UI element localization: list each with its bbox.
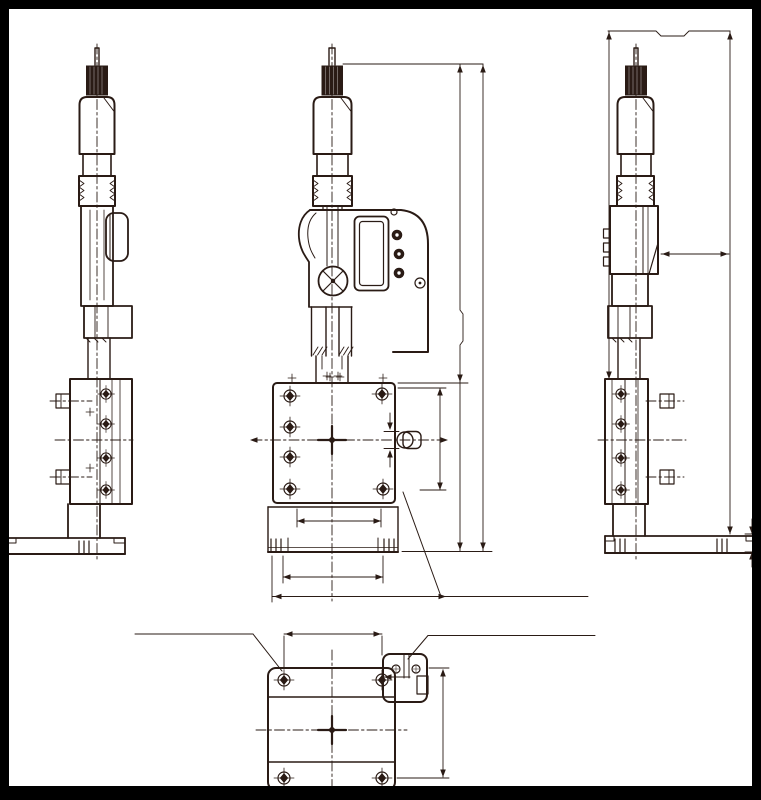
button-3[interactable] — [394, 268, 405, 279]
view-left-side — [5, 44, 133, 560]
stage-plate-front — [250, 373, 448, 503]
dimensions-right — [606, 31, 759, 567]
display-housing-edge — [604, 206, 659, 274]
sleeve-body — [314, 97, 352, 154]
display-housing — [310, 209, 428, 352]
overall-height-extension — [608, 31, 730, 36]
ratchet-cap — [86, 66, 108, 96]
ratchet-cap — [322, 66, 344, 96]
leader-line — [403, 492, 441, 597]
hole-pitch-dimension-with-breaks — [135, 631, 595, 671]
button-2[interactable] — [394, 249, 405, 260]
width-dimension-b — [283, 556, 383, 583]
button-1[interactable] — [392, 230, 403, 241]
travel-dimension — [661, 251, 729, 257]
border-right — [752, 0, 761, 800]
base-foot-side — [605, 504, 755, 553]
clamp-screws-right — [646, 394, 684, 484]
drawing-canvas — [0, 0, 761, 800]
base-foot-side — [5, 504, 125, 554]
clamp-block — [84, 306, 132, 342]
border-top — [0, 0, 761, 9]
clamp-plan — [383, 654, 428, 702]
frame — [299, 206, 353, 356]
border-bottom — [0, 786, 761, 800]
thimble — [617, 176, 654, 206]
view-front — [250, 44, 448, 601]
body-column — [612, 274, 648, 306]
border-left — [0, 0, 9, 800]
hole-pitch-dimension-vertical — [397, 668, 449, 778]
width-dimension-a — [297, 509, 381, 527]
stage-block-side — [598, 379, 686, 504]
view-right-side — [598, 44, 755, 560]
frame-legs — [88, 338, 110, 379]
lock-knob[interactable] — [319, 267, 348, 296]
sleeve-joint — [317, 154, 348, 176]
frame-legs — [618, 338, 640, 379]
technical-drawing — [0, 0, 761, 800]
dimensions-front — [272, 64, 588, 602]
ratchet-cap — [625, 66, 647, 96]
clamp-block — [608, 306, 652, 342]
base-front — [268, 507, 398, 552]
width-dimension-c-with-leader — [272, 492, 588, 602]
stage-plate-plan — [256, 650, 407, 797]
stage-block-side — [55, 379, 133, 504]
display-pod-edge — [106, 213, 128, 261]
thimble — [313, 176, 352, 206]
view-plan — [135, 631, 595, 797]
stage-height-dimension — [398, 388, 446, 490]
